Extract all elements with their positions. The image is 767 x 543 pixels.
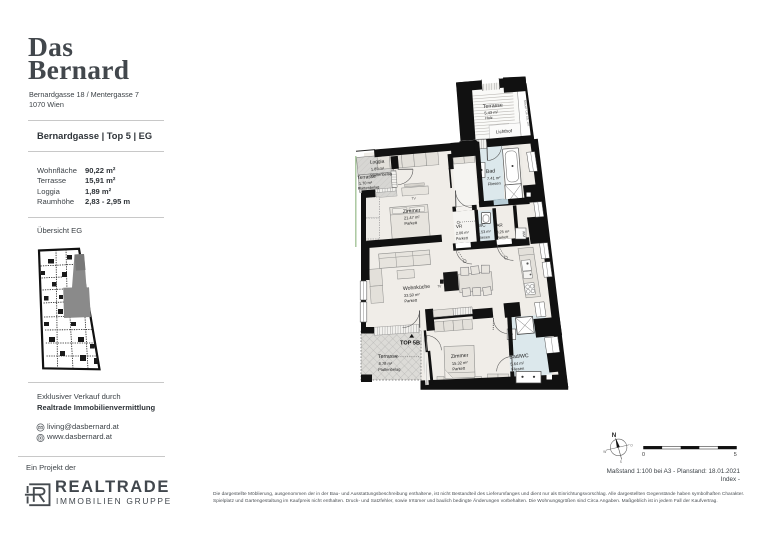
svg-text:Fliesen: Fliesen: [511, 366, 524, 372]
svg-text:WC: WC: [478, 222, 487, 228]
svg-text:Parkett: Parkett: [452, 365, 466, 371]
svg-text:S: S: [620, 460, 622, 464]
svg-text:O: O: [630, 443, 633, 447]
svg-text:5: 5: [734, 452, 737, 458]
svg-text:Bad: Bad: [486, 168, 496, 175]
svg-text:Loggia: Loggia: [370, 159, 385, 166]
svg-text:W: W: [603, 450, 606, 454]
svg-text:Parkett: Parkett: [404, 297, 418, 303]
svg-text:Plattenbelag: Plattenbelag: [378, 367, 400, 372]
svg-text:Fliesen: Fliesen: [488, 180, 501, 186]
svg-text:N: N: [612, 432, 617, 439]
svg-text:WM: WM: [522, 231, 526, 237]
svg-text:Parkett: Parkett: [404, 220, 418, 226]
svg-text:TOP 5B: TOP 5B: [400, 340, 420, 346]
svg-text:Terrasse: Terrasse: [378, 354, 398, 360]
svg-text:0: 0: [642, 452, 645, 458]
svg-text:AR: AR: [496, 222, 503, 228]
svg-text:Holz: Holz: [485, 116, 493, 121]
svg-text:VR: VR: [456, 224, 463, 230]
svg-text:8.78 m²: 8.78 m²: [379, 361, 393, 366]
